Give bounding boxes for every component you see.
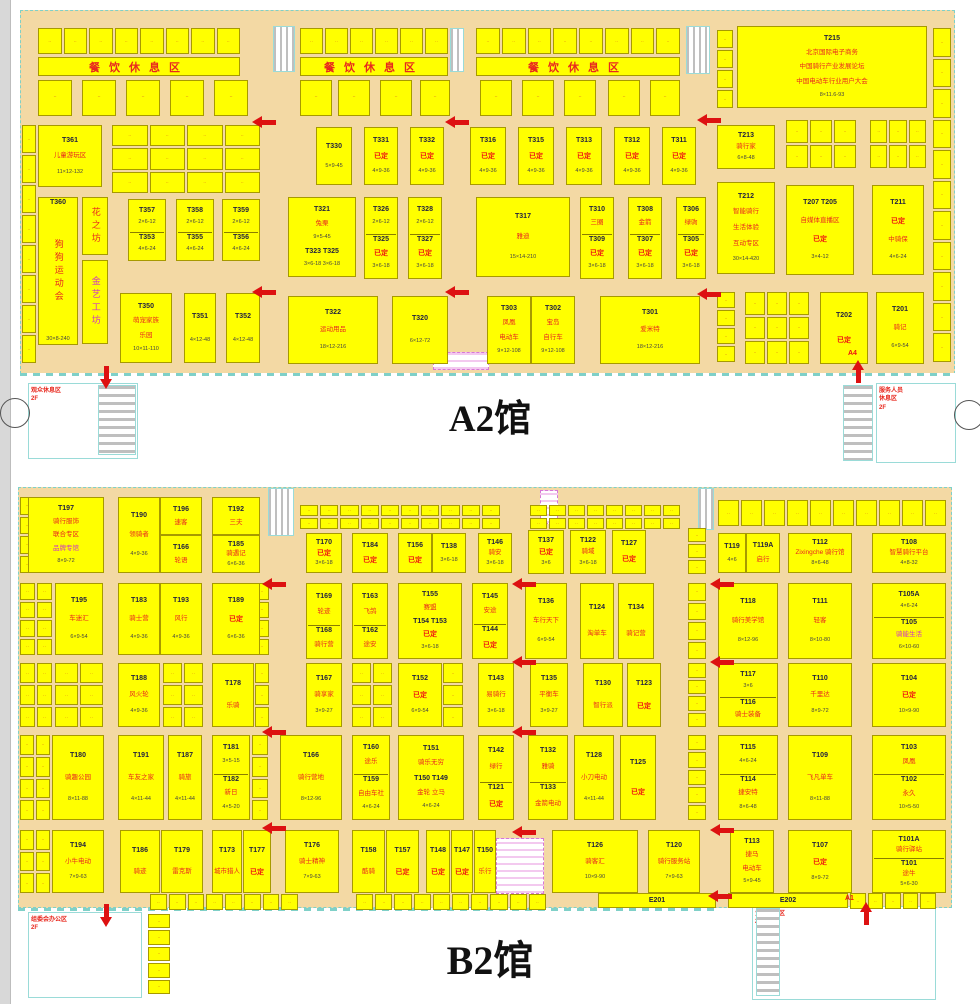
booth-text: 2×6-12 [130,220,164,226]
booth-number: T111 [790,598,850,605]
mini-booth: ·· [644,505,661,516]
booth-text: 花之坊 [90,201,99,251]
booth-number: T108 [874,539,944,546]
mini-booth: ·· [361,518,379,529]
mini-booth-cluster: ···················· [356,894,546,910]
booth-text: 2×6-12 [224,220,258,226]
mini-booth: ·· [767,292,787,315]
booth-··: ·· [170,80,204,116]
booth-text: 7×9-63 [54,875,102,881]
mini-booth: ·· [688,696,706,711]
booth-text: 3×6-18 [410,264,440,270]
flow-arrow-left [708,890,732,902]
mini-booth-cluster: ········ [688,663,706,727]
escalator [756,908,780,996]
reserved-flag: 已定 [474,642,506,649]
booth-text: 8×11.6-93 [739,93,925,99]
booth-金艺工坊: 金艺工坊 [82,260,108,344]
booth-text: 15×14-210 [478,255,568,261]
booth-text: ·· [40,95,70,100]
booth-text: 4×12-48 [186,338,214,344]
booth-T312: T312已定4×9-36 [614,127,650,185]
mini-booth: ·· [933,272,951,301]
booth-number: T360 [40,199,76,206]
mini-booth: ·· [482,518,500,529]
stage-structure [496,838,544,894]
mini-booth-cluster: ························ [112,125,260,193]
booth-number: T143 [480,675,512,682]
mini-booth: ·· [568,518,585,529]
mini-booth: ·· [263,894,280,910]
mini-booth: ·· [20,852,34,872]
flow-arrow-up [860,902,872,925]
booth-text: ·· [382,95,410,100]
booth-number: T112 [790,539,850,546]
mini-booth-cluster: ·········· [148,914,170,994]
mini-booth-cluster: ······ [443,663,463,727]
booth-text: ·· [216,95,246,100]
reserved-flag: 已定 [428,869,448,876]
booth-text: 3×6-18 [572,561,604,567]
booth-text: 18×12-216 [602,345,698,351]
flow-arrow-left [710,578,734,590]
booth-T351: T3514×12-48 [184,293,216,363]
booth-text: 9×12-108 [489,349,529,355]
booth-T322: T322运动用品18×12-216 [288,296,378,364]
booth-number: T148 [428,847,448,854]
booth-number: T317 [478,213,568,220]
booth-T330: T3305×9-45 [316,127,352,185]
booth-text: 绿行 [480,764,512,771]
mini-booth: ·· [225,894,242,910]
booth-number: T130 [585,680,621,687]
booth-T117: T1173×6T116骑士装备 [718,663,778,727]
booth-T127: T127已定 [612,530,646,574]
booth-text: 自行车 [533,335,573,342]
flow-arrow-left [710,824,734,836]
booth-number: T124 [582,604,612,611]
booth-text: 2×6-12 [366,220,396,226]
mini-booth: ·· [688,805,706,820]
mini-booth: ·· [20,757,34,777]
mini-booth: ·· [381,518,399,529]
booth-E202: E202 [728,893,848,908]
exhibition-floor-plan: 观众休息区2F服务人员休息区2F························… [0,0,980,1004]
booth-T311: T311已定4×9-36 [662,127,696,185]
booth-number: T102 [874,774,944,783]
booth-number: T166 [162,544,200,551]
booth-number: T110 [790,675,850,682]
booth-text: 9×5-45 [290,235,354,241]
gate-label: A4 [848,350,857,357]
booth-text: 骑旅 [170,775,200,782]
mini-booth: ·· [933,120,951,149]
flow-arrow-left [512,826,536,838]
booth-text: 骑遇记 [214,551,258,558]
booth-number: T320 [394,315,446,322]
booth-T213: T213骑行家6×8-48 [717,125,775,169]
mini-booth: ·· [789,292,809,315]
booth-number: T127 [614,540,644,547]
booth-number: T310 [582,206,612,213]
booth-text: 8×9-72 [30,559,102,565]
side-room: 服务人员休息区2F [876,383,956,463]
mini-booth: ·· [244,894,261,910]
booth-text: 4×9-36 [520,169,552,175]
mini-booth: ·· [834,145,856,168]
booth-text: 速客 [162,520,200,527]
mini-booth: ·· [112,172,148,193]
booth-text: 8×12-96 [720,638,776,644]
booth-number: T196 [162,506,200,513]
booth-number: T123 [629,680,659,687]
mini-booth: ·· [381,505,399,516]
mini-booth: ·· [529,894,546,910]
reserved-flag: 已定 [354,557,386,564]
mini-booth: ·· [688,680,706,695]
booth-T328: T3282×6-12T327已定3×6-18 [408,197,442,279]
booth-text: 8×12-96 [282,797,340,803]
booth-T135: T135平衡车3×9-27 [530,663,568,727]
booth-number: T118 [720,598,776,605]
booth-text: 骑行美学馆 [720,618,776,625]
mini-booth: ·· [22,275,36,303]
booth-text: 金艺工坊 [90,264,99,340]
booth-text: 骑行驿站 [874,847,944,854]
booth-number: T122 [572,537,604,544]
booth-T179: T179雷克斯 [161,830,203,893]
reserved-flag: 已定 [400,631,460,638]
booth-number: T117 [720,671,776,678]
mini-booth: ·· [717,70,733,88]
mini-booth: ·· [745,317,765,340]
booth-text: 骑行家 [719,144,773,151]
booth-T173: T173城市猎人 [212,830,242,893]
booth-text: 9×12-108 [533,349,573,355]
reserved-flag: 已定 [664,153,694,160]
mini-booth: ·· [644,518,661,529]
booth-T112: T112Zixingche 骑行馆8×6-48 [788,533,852,573]
booth-text: 中骑保 [874,237,922,244]
mini-booth: ·· [148,930,170,944]
reserved-flag: 已定 [412,153,442,160]
booth-text: 11×12-132 [40,170,100,176]
booth-T105A: T105A4×6-24T105骑能生活6×10-60 [872,583,946,659]
mini-booth-cluster: ········································ [300,505,500,529]
mini-booth: ·· [22,305,36,333]
booth-number: T173 [214,847,240,854]
mini-booth: ·· [717,310,735,326]
mini-booth: ·· [36,757,50,777]
booth-number: T115 [720,744,776,751]
booth-T176: T176骑士精神7×9-63 [285,830,339,893]
mini-booth: ·· [786,120,808,143]
booth-text: 三圈 [582,220,612,227]
mini-booth: ·· [568,505,585,516]
mini-booth-cluster: ···················· [718,500,946,526]
booth-number: T113 [732,838,772,845]
reserved-flag: 已定 [520,153,552,160]
booth-T331: T331已定4×9-36 [364,127,398,185]
booth-T202: T202已定 [820,292,868,364]
booth-text: 4×9-36 [162,635,200,641]
booth-number: E202 [730,897,846,904]
mini-booth: ·· [225,148,261,169]
booth-text: 宝岛 [533,320,573,327]
gate-label: A1 [845,895,854,902]
mini-booth: ·· [764,500,785,526]
booth-text: ·· [422,95,448,100]
booth-T125: T125已定 [620,735,656,820]
booth-text: 4×6-24 [874,255,922,261]
reserved-flag: 已定 [874,692,944,699]
booth-number: T352 [228,313,258,320]
booth-text: 兔栗 [290,221,354,228]
booth-number: T169 [308,593,340,600]
booth-T212: T212智能骑行生活体验互动专区30×14-420 [717,182,775,274]
mini-booth: ·· [688,528,706,542]
booth-text: 轮迹 [308,609,340,616]
reserved-flag: 已定 [472,153,504,160]
mini-booth: ·· [320,505,338,516]
flow-arrow-left [697,114,721,126]
left-gray-margin [0,0,11,1004]
booth-text: 30×14-420 [719,257,773,263]
booth-text: 4×6-24 [874,604,944,610]
booth-··: ·· [480,80,512,116]
booth-number: T188 [120,675,158,682]
booth-text: 5×9-45 [318,164,350,170]
mini-booth: ·· [587,518,604,529]
mini-booth: ·· [150,172,186,193]
mini-booth: ·· [20,735,34,755]
booth-T361: T361儿童游玩区11×12-132 [38,125,102,187]
booth-T111: T111轻客8×10-80 [788,583,852,659]
mini-booth: ·· [933,211,951,240]
booth-text: 骑士营 [120,616,158,623]
booth-number: T183 [120,597,158,604]
mini-booth-cluster: ······ [255,663,269,727]
mini-booth: ·· [933,303,951,332]
mini-booth: ·· [549,505,566,516]
mini-booth: ·· [656,28,680,54]
mini-booth-cluster: ············ [163,663,203,727]
booth-text: 4×6-24 [178,247,212,253]
booth-number: T331 [366,137,396,144]
booth-text: 3×6-18 [366,264,396,270]
mini-booth: ·· [373,685,392,705]
mini-booth: ·· [425,28,448,54]
mini-booth: ·· [36,735,50,755]
booth-text: 电动车 [489,335,529,342]
booth-T302: T302宝岛自行车9×12-108 [531,296,575,364]
booth-T194: T194小牛电动7×9-63 [52,830,104,893]
mini-booth: ·· [37,639,52,656]
flow-arrow-left [512,656,536,668]
booth-花之坊: 花之坊 [82,197,108,255]
mini-booth: ·· [625,518,642,529]
booth-text: 4×6-24 [354,805,388,811]
reserved-flag: 已定 [410,250,440,257]
booth-number: T128 [576,752,612,759]
flow-arrow-left [252,116,276,128]
mini-booth: ·· [36,852,50,872]
booth-number: T326 [366,206,396,213]
reserved-flag: 已定 [388,869,417,876]
booth-text: 骑行服饰 [30,519,102,526]
mini-booth: ·· [786,145,808,168]
mini-booth: ·· [879,500,900,526]
flow-arrow-left [252,286,276,298]
booth-text: 电动车 [732,866,772,873]
mini-booth: ·· [80,707,103,727]
booth-number: T358 [178,207,212,214]
booth-text: ·· [172,95,202,100]
booth-number: T308 [630,206,660,213]
mini-booth: ·· [166,28,190,54]
reserved-flag: 已定 [622,789,654,796]
booth-text: 乐园 [122,333,170,340]
mini-booth-cluster: ················ [22,125,36,363]
booth-T150: T150乐行 [474,830,496,893]
mini-booth: ·· [789,317,809,340]
mini-booth: ·· [443,663,463,683]
mini-booth-cluster: ········ [717,30,733,108]
booth-··: ·· [420,80,450,116]
booth-number: T316 [472,137,504,144]
mini-booth: ·· [605,28,629,54]
booth-T177: T177已定 [243,830,271,893]
booth-T186: T186骑迹 [120,830,160,893]
mini-booth: ·· [150,894,167,910]
booth-text: 4×5-20 [214,805,248,811]
flow-arrow-left [262,578,286,590]
escalator [268,488,294,536]
booth-T191: T191车友之家4×11-44 [118,735,164,820]
booth-number: T166 [282,752,340,759]
booth-text: 萌宠家族 [122,318,170,325]
booth-text: 风火轮 [120,692,158,699]
booth-T123: T123已定 [627,663,661,727]
booth-T310: T310三圈T309已定3×6-18 [580,197,614,279]
booth-text: 3×6-18 [434,558,464,564]
booth-T136: T136车行天下6×9-54 [525,583,567,659]
hall-a2-title: A2馆 [390,388,590,442]
mini-booth: ·· [688,583,706,601]
booth-T196: T196速客 [160,497,202,535]
mini-booth: ·· [22,245,36,273]
flow-arrow-left [262,726,286,738]
mini-booth: ·· [688,787,706,802]
booth-number: T323 T325 [290,248,354,255]
booth-number: T101A [874,836,944,843]
mini-booth: ·· [140,28,164,54]
mini-booth: ·· [55,707,78,727]
booth-E201: E201 [598,893,716,908]
reserved-flag: 已定 [678,250,704,257]
booth-T145: T145安途T144已定 [472,583,508,659]
booth-number: T162 [354,625,386,634]
mini-booth: ·· [587,505,604,516]
mini-booth: ·· [37,620,52,637]
booth-text: 8×11-88 [54,797,102,803]
mini-booth: ·· [856,500,877,526]
booth-T178: T178乐骑 [212,663,254,727]
booth-text: 启行 [748,557,778,564]
booth-text: 6×9-54 [878,344,922,350]
booth-number: T136 [527,598,565,605]
booth-T109: T109飞凡单车8×11-88 [788,735,852,820]
booth-number: T151 [400,745,462,752]
booth-number: T361 [40,137,100,144]
booth-number: T114 [720,774,776,783]
booth-text: 酷骑 [354,869,383,876]
booth-text: 8×9-72 [790,709,850,715]
mini-booth: ·· [112,148,148,169]
booth-T119A: T119A启行 [746,533,780,573]
mini-booth: ·· [810,145,832,168]
mini-booth: ·· [717,50,733,68]
mini-booth: ·· [490,894,507,910]
booth-text: 3×6-18 3×6-18 [290,262,354,268]
reserved-flag: 已定 [582,250,612,257]
booth-T306: T306绿驹T305已定3×6-18 [676,197,706,279]
booth-··: ·· [522,80,554,116]
booth-T143: T143易骑行3×6-18 [478,663,514,727]
mini-booth: ·· [530,518,547,529]
booth-text: Zixingche 骑行馆 [790,550,850,557]
booth-text: 雅迪 [478,234,568,241]
booth-number: T186 [122,847,158,854]
booth-number: T302 [533,305,573,312]
booth-text: 骑能生活 [874,632,944,639]
mini-booth: ·· [80,685,103,705]
mini-booth-cluster: ················ [150,894,298,910]
mini-booth: ·· [401,505,419,516]
mini-booth: ·· [20,583,35,600]
booth-T110: T110千里达8×9-72 [788,663,852,727]
booth-text: 轻客 [790,618,850,625]
booth-T166: T166骑行营地8×12-96 [280,735,342,820]
booth-number: T163 [354,593,386,600]
booth-T180: T180骑趣公园8×11-88 [52,735,104,820]
mini-booth: ·· [717,30,733,48]
rest-area-banner: 餐饮休息区 [38,57,240,76]
booth-number: T213 [719,132,773,139]
booth-text: 3×6-18 [308,561,340,567]
booth-text: 骑迹 [122,869,158,876]
mini-booth: ·· [352,685,371,705]
booth-T352: T3524×12-48 [226,293,260,363]
flow-arrow-left [697,288,721,300]
booth-T350: T350萌宠家族乐园10×11-110 [120,293,172,363]
booth-number: T138 [434,543,464,550]
mini-booth: ·· [789,341,809,364]
booth-text: 8×11-88 [790,797,850,803]
booth-T152: T152已定6×9-54 [398,663,442,727]
booth-T187: T187骑旅4×11-44 [168,735,202,820]
mini-booth: ·· [184,685,203,705]
booth-T185: T185骑遇记6×6-36 [212,535,260,573]
booth-T113: T113捷马电动车5×9-45 [730,830,774,893]
mini-booth: ·· [20,602,35,619]
mini-booth: ·· [20,830,34,850]
mini-booth: ·· [350,28,373,54]
booth-T137: T137已定3×6 [528,530,564,574]
booth-number: T191 [120,752,162,759]
booth-text: 智能骑行 [719,209,773,216]
booth-text: 狗狗运动会 [53,208,62,335]
